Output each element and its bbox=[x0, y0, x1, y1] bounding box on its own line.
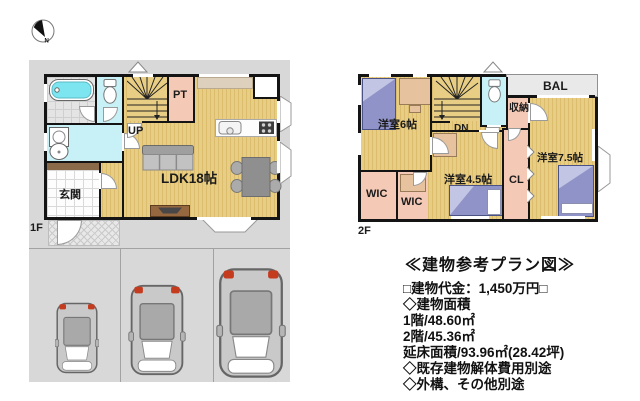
vent-marker-1f bbox=[128, 61, 148, 73]
room-label-bedroom6: 洋室6帖 bbox=[378, 120, 417, 131]
info-exterior-note: ◇外構、その他別途 bbox=[403, 373, 525, 393]
car-large bbox=[215, 266, 287, 380]
window-1f bbox=[197, 217, 251, 220]
room-label-stairs-down: DN bbox=[454, 124, 468, 134]
window-2f bbox=[413, 74, 427, 77]
room-label-bedroom45: 洋室4.5帖 bbox=[444, 175, 492, 186]
plan-title: ≪建物参考プラン図≫ bbox=[385, 251, 595, 275]
room-label-stairs-up: UP bbox=[128, 126, 143, 137]
room-label-pantry: PT bbox=[173, 90, 187, 101]
window-2f bbox=[369, 74, 391, 77]
room-label-wic-left: WIC bbox=[366, 189, 387, 200]
sofa-icon bbox=[142, 145, 194, 171]
bed-bedroom45 bbox=[449, 185, 504, 216]
dining-table-icon bbox=[230, 157, 282, 197]
toilet-icon-1f bbox=[102, 79, 118, 105]
balcony-window bbox=[537, 95, 589, 98]
bedroom45-door-arc bbox=[481, 132, 498, 149]
stairs-up-treads bbox=[127, 77, 167, 121]
parking-divider bbox=[29, 248, 290, 249]
washbasin-icon bbox=[49, 143, 69, 160]
room-label-wic-right: WIC bbox=[401, 197, 422, 208]
room-label-storage: 収納 bbox=[509, 104, 529, 114]
floor2-label: 2F bbox=[358, 226, 371, 237]
room-label-bedroom75: 洋室7.5帖 bbox=[537, 153, 583, 164]
hall-door-arc bbox=[101, 173, 117, 189]
room-label-entrance: 玄関 bbox=[59, 190, 81, 201]
floor-plan-sheet: N bbox=[0, 0, 640, 401]
chair-bedroom6 bbox=[409, 105, 421, 113]
window-2f bbox=[451, 216, 489, 219]
parking-divider bbox=[120, 248, 121, 382]
fridge-space bbox=[255, 77, 277, 97]
window-1f bbox=[44, 133, 47, 151]
kitchen-counter-icon bbox=[215, 119, 277, 137]
stairs-down-treads bbox=[434, 77, 480, 121]
house-2f: BAL 収納 DN 洋室6帖 洋室7.5帖 洋室4.5帖 WIC WIC CL bbox=[358, 74, 598, 222]
vent-marker-2f bbox=[483, 61, 503, 73]
window-1f bbox=[133, 74, 153, 77]
car-medium bbox=[127, 283, 187, 377]
room-label-balcony: BAL bbox=[543, 80, 568, 92]
desk-bedroom6 bbox=[399, 78, 431, 105]
north-compass-icon: N bbox=[30, 18, 58, 50]
shoe-cabinet bbox=[47, 163, 99, 170]
floor1-label: 1F bbox=[30, 223, 43, 234]
room-label-closet: CL bbox=[509, 175, 524, 186]
tv-board-icon bbox=[150, 205, 190, 217]
room-label-ldk: LDK18帖 bbox=[161, 172, 217, 186]
window-2f bbox=[358, 133, 361, 155]
parking-divider bbox=[213, 248, 214, 382]
kitchen-cupboard bbox=[197, 77, 253, 89]
closet-folding-door bbox=[527, 143, 536, 207]
window-1f bbox=[199, 74, 249, 77]
north-letter: N bbox=[45, 39, 49, 45]
bay-window-1f-right bbox=[280, 142, 292, 184]
bay-window-1f-bottom bbox=[200, 219, 260, 233]
bedroom75-door-arc bbox=[530, 103, 548, 121]
bay-window-1f-right bbox=[280, 96, 292, 132]
window-2f bbox=[592, 129, 595, 161]
bay-window-2f-right bbox=[598, 146, 611, 192]
car-small bbox=[55, 298, 99, 378]
house-1f: PT UP LDK18帖 玄関 bbox=[44, 74, 280, 220]
window-1f bbox=[44, 84, 47, 102]
bathtub-icon bbox=[49, 79, 94, 101]
window-2f bbox=[541, 216, 585, 219]
window-2f bbox=[358, 85, 361, 105]
bed-bedroom75 bbox=[558, 165, 594, 217]
toilet-icon-2f bbox=[487, 79, 502, 104]
